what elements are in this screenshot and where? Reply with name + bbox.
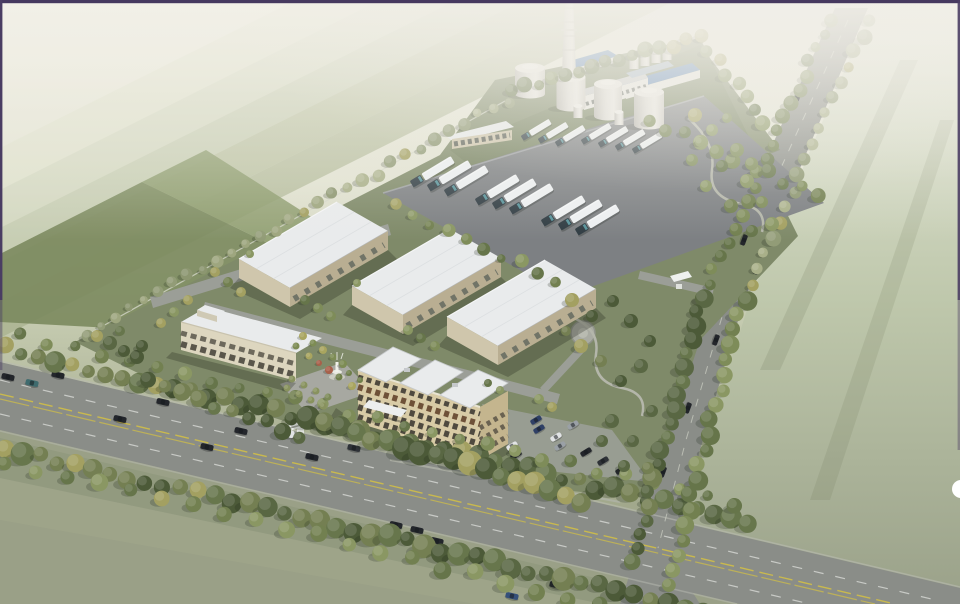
atmospheric-haze (0, 0, 960, 340)
rendering-viewport: industrial plant and logistics campus ma… (0, 0, 960, 604)
border-left (0, 0, 2, 300)
border-left-fade (0, 300, 2, 370)
haze-corner (0, 0, 960, 340)
rooftop-unit (404, 368, 410, 372)
border-top (0, 0, 960, 3)
scene-canvas: industrial plant and logistics campus ma… (0, 0, 960, 604)
rooftop-unit (452, 383, 458, 387)
